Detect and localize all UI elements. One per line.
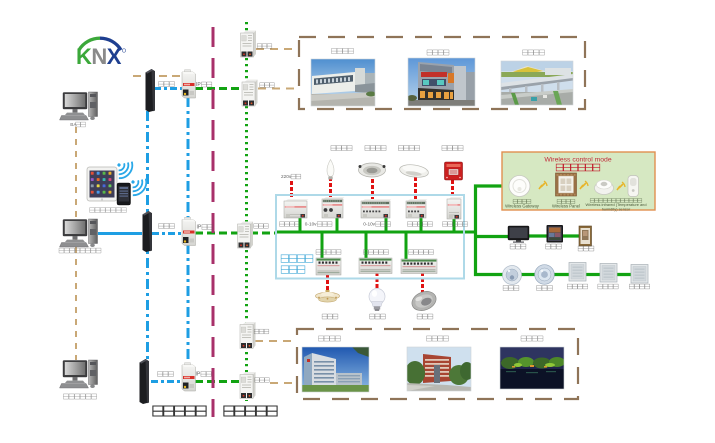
svg-text:KNX: KNX [76, 44, 122, 69]
svg-text:Wireless Panel: Wireless Panel [552, 204, 580, 209]
svg-text:IP: IP [196, 372, 201, 378]
svg-text:IP: IP [196, 82, 201, 88]
svg-text:Wireless control mode: Wireless control mode [544, 157, 611, 164]
svg-text:IP: IP [197, 225, 202, 231]
svg-text:BA: BA [70, 122, 77, 128]
svg-text:humidity) sensor: humidity) sensor [602, 207, 631, 212]
svg-text:0-10v: 0-10v [363, 222, 375, 227]
svg-text:Wireless Gateway: Wireless Gateway [505, 204, 540, 209]
svg-text:220v: 220v [281, 174, 292, 179]
svg-text:0-10v: 0-10v [305, 222, 317, 227]
